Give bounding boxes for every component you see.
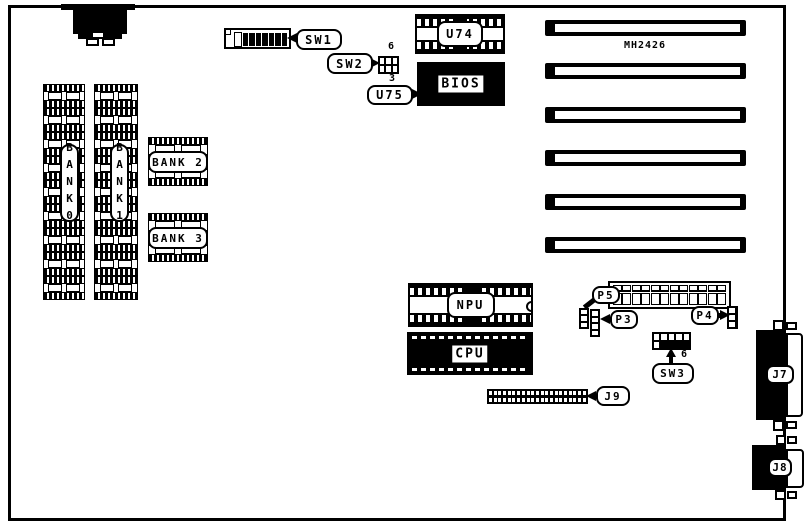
chip-window <box>48 116 62 124</box>
pin-cell <box>581 316 587 320</box>
chip-pins-top <box>44 133 84 140</box>
chip-pins-bottom <box>95 244 137 251</box>
j7-mount-tab <box>773 320 784 331</box>
pin-cell <box>508 391 511 395</box>
chip-body <box>44 260 84 268</box>
power-header-pin <box>670 285 679 292</box>
chip-pins-top <box>44 253 84 260</box>
chip-pins-top <box>95 277 137 284</box>
u75-label: U75 <box>367 85 413 105</box>
chip-pins-top <box>95 133 137 140</box>
pin-cell <box>494 398 497 402</box>
chip-window <box>118 260 132 268</box>
pin-cell <box>573 391 576 395</box>
power-header-cells-row <box>613 293 726 305</box>
expansion-slot <box>545 20 746 36</box>
pin-cell <box>559 398 562 402</box>
chip-pins-bottom <box>95 100 137 107</box>
expansion-slot <box>545 194 746 210</box>
chip-pins-bottom <box>44 100 84 107</box>
expansion-slot-opening <box>555 241 740 249</box>
bank0-label: BANK0 <box>60 144 79 222</box>
expansion-slot <box>545 107 746 123</box>
dip-position <box>256 33 262 46</box>
sw1-dip-switch <box>224 28 291 49</box>
p4-label: P4 <box>691 306 719 325</box>
chip-body <box>44 92 84 100</box>
chip-window <box>118 92 132 100</box>
keyboard-connector-body <box>73 8 127 34</box>
chip-pins-bottom <box>44 268 84 275</box>
j7-mount-tab <box>786 322 797 330</box>
pin-cell <box>729 322 735 327</box>
chip-window <box>100 116 114 124</box>
expansion-slot <box>545 63 746 79</box>
pin-cell <box>592 311 598 316</box>
bios-chip: BIOS <box>417 62 505 106</box>
pin-cell <box>527 391 530 395</box>
dip-position <box>275 33 281 46</box>
bios-label: BIOS <box>438 76 483 93</box>
chip-window <box>66 92 80 100</box>
power-header-pin <box>689 285 698 292</box>
chip-pins-top <box>95 85 137 92</box>
dip-position <box>243 33 249 46</box>
chip-window <box>66 284 80 292</box>
jumper-cell <box>380 66 384 72</box>
pin-cell <box>512 391 515 395</box>
chip-pins-bottom <box>149 254 207 261</box>
pin-cell <box>592 331 598 336</box>
pin-cell <box>503 391 506 395</box>
power-header-cell <box>698 293 707 305</box>
dip-position <box>234 32 242 47</box>
power-header-pin <box>651 285 660 292</box>
expansion-slot <box>545 237 746 253</box>
expansion-slot <box>545 150 746 166</box>
pin-cell <box>512 398 515 402</box>
chip-body <box>44 116 84 124</box>
pin-cell <box>494 391 497 395</box>
chip-body <box>95 260 137 268</box>
jumper-cell <box>661 334 666 340</box>
sw3-label: SW3 <box>652 363 694 384</box>
cpu-pins-top <box>412 336 528 339</box>
u74-label: U74 <box>437 21 483 47</box>
power-header-pin <box>679 285 688 292</box>
memory-chip <box>94 276 138 300</box>
power-header-cell <box>708 293 717 305</box>
p4-arrow-icon <box>720 310 730 320</box>
u74-chip: U74 <box>415 14 505 54</box>
chip-pins-bottom <box>95 268 137 275</box>
pin-cell <box>581 323 587 327</box>
dip-position <box>249 33 255 46</box>
power-header-cell <box>651 293 660 305</box>
sw2-label: SW2 <box>327 53 373 74</box>
power-header-cell <box>679 293 688 305</box>
jumper-cell <box>393 58 397 64</box>
chip-body <box>44 236 84 244</box>
p3-connector <box>590 309 600 337</box>
pin-cell <box>527 398 530 402</box>
power-header-cell <box>632 293 641 305</box>
sw2-jumper-block <box>378 56 399 74</box>
j9-label: J9 <box>596 386 630 406</box>
expansion-slot-group <box>545 20 746 253</box>
memory-chip <box>94 84 138 108</box>
memory-chip <box>43 252 85 276</box>
chip-window <box>66 260 80 268</box>
pin-cell <box>550 398 553 402</box>
power-header-pin <box>641 285 650 292</box>
pin-cell <box>581 310 587 314</box>
chip-pins-top <box>149 138 207 145</box>
chip-pins-bottom <box>149 178 207 185</box>
chip-pins-top <box>44 109 84 116</box>
chip-pins-top <box>95 253 137 260</box>
pin-cell <box>531 391 534 395</box>
jumper-cell <box>684 334 689 340</box>
sw2-pin6-number: 6 <box>388 42 394 52</box>
keyboard-connector-notch <box>93 33 103 37</box>
chip-window <box>48 236 62 244</box>
chip-pins-bottom <box>44 244 84 251</box>
chip-pins-top <box>95 229 137 236</box>
chip-body <box>95 284 137 292</box>
pin-cell <box>498 398 501 402</box>
pin-cell <box>564 398 567 402</box>
cpu-pins-bottom <box>412 368 528 371</box>
pin-cell <box>536 398 539 402</box>
p5-label: P5 <box>592 286 620 304</box>
power-header-pin <box>632 285 641 292</box>
j7-mount-tab <box>786 421 797 429</box>
j8-label: J8 <box>768 458 792 477</box>
p3-label: P3 <box>610 310 638 329</box>
pin-cell <box>545 398 548 402</box>
power-header-pin <box>660 285 669 292</box>
pin-cell <box>522 391 525 395</box>
chip-pins-top <box>149 214 207 221</box>
keyboard-connector-pin <box>86 38 99 46</box>
sw1-pin1-marker <box>225 29 231 35</box>
jumper-cell <box>386 58 390 64</box>
chip-body <box>95 92 137 100</box>
jumper-cell <box>393 66 397 72</box>
expansion-slot-opening <box>555 198 740 206</box>
sw2-pin3-number: 3 <box>389 74 395 84</box>
power-header-cell <box>689 293 698 305</box>
j8-mount-tab <box>787 491 797 499</box>
j8-mount-tab <box>787 436 797 444</box>
j9-pins-row <box>489 398 586 402</box>
chip-window <box>100 92 114 100</box>
pin-cell <box>592 318 598 323</box>
chip-window <box>66 236 80 244</box>
chip-window <box>48 260 62 268</box>
power-header-cell <box>622 293 631 305</box>
j7-label: J7 <box>766 365 794 384</box>
pin-cell <box>517 398 520 402</box>
memory-chip <box>43 228 85 252</box>
pin-cell <box>550 391 553 395</box>
cpu-chip: CPU <box>407 332 533 375</box>
npu-label: NPU <box>447 292 495 318</box>
pin-cell <box>578 398 581 402</box>
pin-cell <box>503 398 506 402</box>
chip-window <box>100 236 114 244</box>
power-header-connector <box>608 281 731 309</box>
npu-notch <box>526 301 533 312</box>
chip-pins-bottom <box>44 124 84 131</box>
pin-cell <box>541 391 544 395</box>
chip-window <box>100 260 114 268</box>
chip-window <box>48 140 62 148</box>
j8-mount-tab <box>775 490 786 500</box>
keyboard-connector-pin <box>102 38 115 46</box>
chip-window <box>118 236 132 244</box>
j8-mount-tab <box>776 435 786 445</box>
cpu-label: CPU <box>452 345 487 362</box>
dip-position <box>262 33 268 46</box>
bank1-label: BANK1 <box>110 144 129 222</box>
pin-cell <box>555 391 558 395</box>
u75-arrow-icon <box>412 89 422 99</box>
power-header-pin <box>717 285 726 292</box>
power-header-pins-row <box>613 285 726 292</box>
pin-cell <box>592 324 598 329</box>
npu-chip: NPU <box>408 283 533 327</box>
memory-chip <box>43 108 85 132</box>
chip-pins-bottom <box>44 292 84 299</box>
pin-cell <box>489 391 492 395</box>
memory-chip <box>94 108 138 132</box>
power-header-cell <box>717 293 726 305</box>
sw1-label: SW1 <box>296 29 342 50</box>
power-header-cell <box>641 293 650 305</box>
pin-cell <box>522 398 525 402</box>
chip-window <box>118 284 132 292</box>
sw3-pin6-number: 6 <box>681 350 687 360</box>
pin-cell <box>578 391 581 395</box>
pin-cell <box>508 398 511 402</box>
power-header-cell <box>670 293 679 305</box>
pin-cell <box>564 391 567 395</box>
j9-connector <box>487 389 588 404</box>
memory-chip <box>94 228 138 252</box>
dip-position <box>269 33 275 46</box>
jumper-cell <box>654 342 659 348</box>
pin-cell <box>569 398 572 402</box>
memory-chip <box>43 276 85 300</box>
jumper-cell <box>676 334 681 340</box>
power-header-pin <box>622 285 631 292</box>
p5-connector <box>579 308 589 329</box>
chip-pins-top <box>44 85 84 92</box>
power-header-cell <box>660 293 669 305</box>
memory-chip <box>43 84 85 108</box>
expansion-slot-opening <box>555 111 740 119</box>
pin-cell <box>559 391 562 395</box>
motherboard-diagram: SW1 SW2 6 3 U74 BIOS U75 MH2426 <box>0 0 806 527</box>
j9-pins-row <box>489 391 586 395</box>
bank2-label: BANK 2 <box>148 151 208 173</box>
chip-window <box>66 116 80 124</box>
pin-cell <box>569 391 572 395</box>
memory-chip <box>94 252 138 276</box>
chip-body <box>44 284 84 292</box>
expansion-slot-opening <box>555 24 740 32</box>
jumper-cell <box>654 334 659 340</box>
chip-body <box>95 236 137 244</box>
jumper-cell <box>386 66 390 72</box>
pin-cell <box>498 391 501 395</box>
expansion-slot-opening <box>555 67 740 75</box>
pin-cell <box>573 398 576 402</box>
chip-window <box>100 284 114 292</box>
jumper-cell <box>380 58 384 64</box>
bank3-label: BANK 3 <box>148 227 208 249</box>
chip-pins-bottom <box>95 124 137 131</box>
j7-mount-tab <box>773 420 784 431</box>
chip-pins-top <box>44 277 84 284</box>
chip-pins-bottom <box>95 292 137 299</box>
pin-cell <box>517 391 520 395</box>
pin-cell <box>541 398 544 402</box>
pin-cell <box>555 398 558 402</box>
pin-cell <box>536 391 539 395</box>
expansion-slot-opening <box>555 154 740 162</box>
chip-window <box>118 116 132 124</box>
pin-cell <box>531 398 534 402</box>
power-header-pin <box>708 285 717 292</box>
chip-pins-top <box>44 229 84 236</box>
chip-body <box>95 116 137 124</box>
chip-pins-top <box>95 109 137 116</box>
jumper-cell <box>669 334 674 340</box>
pin-cell <box>545 391 548 395</box>
power-header-pin <box>698 285 707 292</box>
chip-window <box>48 284 62 292</box>
pin-cell <box>489 398 492 402</box>
chip-window <box>48 92 62 100</box>
